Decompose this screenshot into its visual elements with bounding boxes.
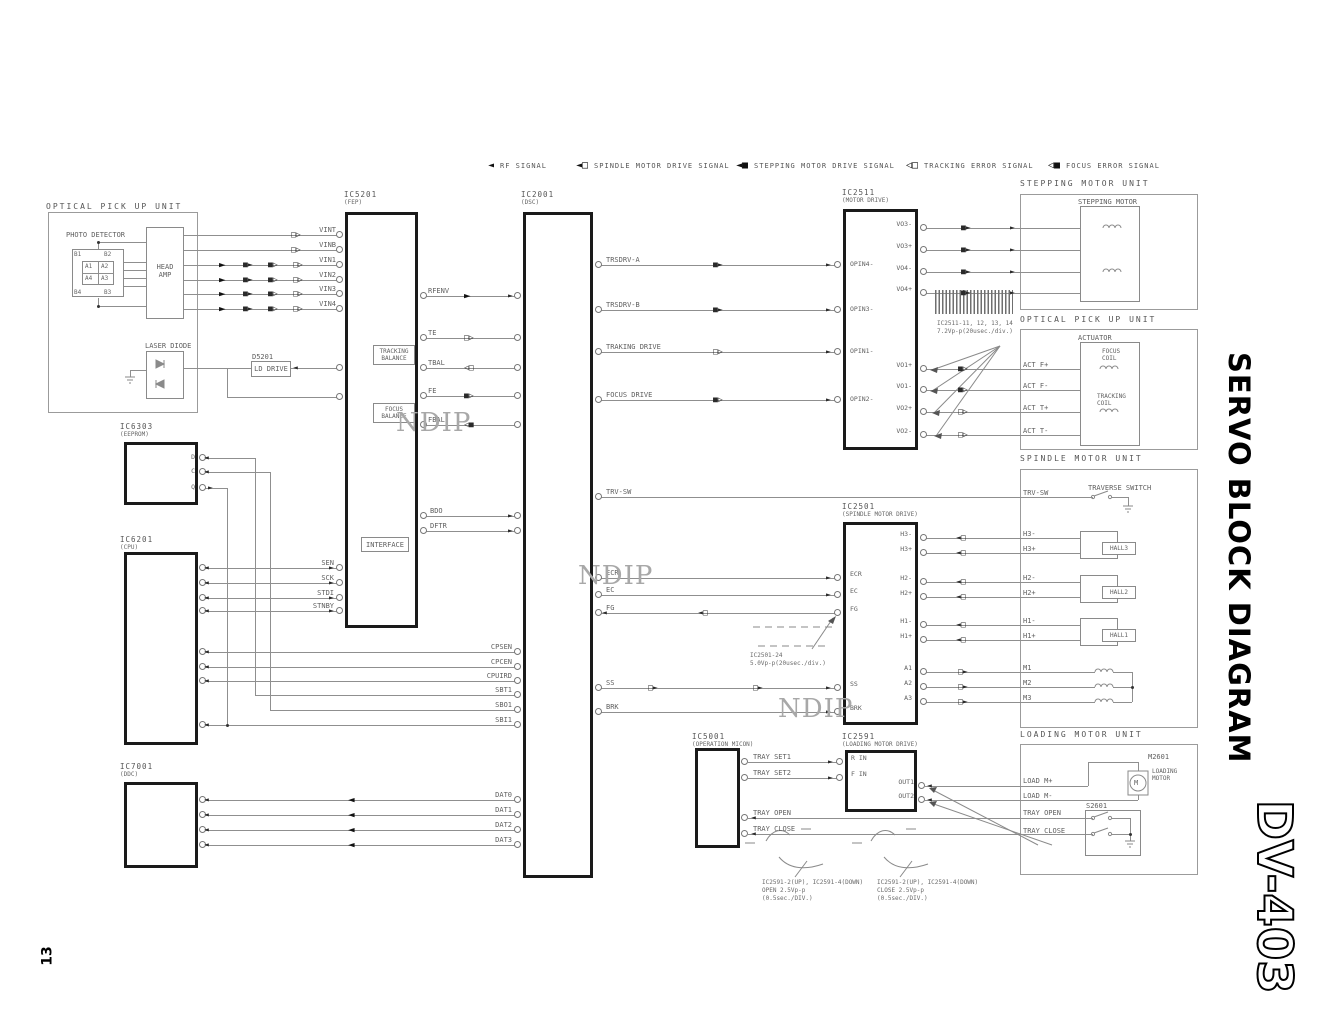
pin bbox=[514, 826, 521, 833]
wire bbox=[1088, 762, 1089, 786]
wire bbox=[926, 553, 1080, 554]
pin bbox=[920, 224, 927, 231]
ic-sub: (DSC) bbox=[521, 199, 539, 206]
stepping-waveform-note: IC2511-11, 12, 13, 14 7.2Vp-p(20usec./di… bbox=[937, 320, 1013, 336]
signal-marker-icon: ◄ bbox=[602, 608, 607, 617]
pointer-line bbox=[900, 861, 912, 877]
ic-name: IC6201 bbox=[120, 535, 153, 544]
span: FOCUS ERROR SIGNAL bbox=[1066, 162, 1160, 170]
span: SPINDLE MOTOR DRIVE SIGNAL bbox=[594, 162, 730, 170]
pin bbox=[336, 364, 343, 371]
arrowhead-icon bbox=[934, 433, 942, 439]
spindle-waveform-note: IC2501-24 5.0Vp-p(20usec./div.) bbox=[750, 652, 826, 668]
signal-marker-icon: □▷ bbox=[293, 289, 303, 298]
pin bbox=[595, 306, 602, 313]
ic-name: IC2511 bbox=[842, 188, 875, 197]
wire bbox=[1138, 762, 1139, 771]
pin bbox=[336, 276, 343, 283]
pin bbox=[836, 774, 843, 781]
ic-name: IC2001 bbox=[521, 190, 554, 199]
signal-marker-icon: ► bbox=[826, 260, 831, 269]
detector-cell-label: B1 bbox=[74, 251, 81, 258]
signal-label: OUT1 bbox=[898, 778, 914, 786]
signal-label: FE bbox=[428, 387, 436, 395]
wire bbox=[98, 242, 146, 243]
pin bbox=[595, 348, 602, 355]
signal-label: VO2- bbox=[896, 427, 912, 435]
pin bbox=[420, 334, 427, 341]
signal-label: VINT bbox=[319, 226, 336, 234]
waveform-curve-icon bbox=[884, 857, 928, 868]
wire bbox=[184, 294, 341, 295]
load-close-note: IC2591-2(UP), IC2591-4(DOWN) CLOSE 2.5Vp… bbox=[877, 879, 978, 903]
signal-marker-icon: ► bbox=[826, 305, 831, 314]
signal-arrow-icon: ► bbox=[219, 303, 226, 314]
ic-name: IC5001 bbox=[692, 732, 725, 741]
signal-label: TRAY OPEN bbox=[753, 809, 791, 817]
signal-label: M3 bbox=[1023, 694, 1031, 702]
signal-label: OUT2 bbox=[898, 792, 914, 800]
wire bbox=[597, 497, 1093, 498]
wire bbox=[1088, 762, 1138, 763]
signal-label: VIN1 bbox=[319, 256, 336, 264]
m2601-label: M2601 bbox=[1148, 753, 1169, 761]
signal-marker-icon: ■► bbox=[961, 223, 971, 232]
signal-arrow-icon: ► bbox=[219, 274, 226, 285]
signal-marker-icon: □► bbox=[958, 667, 968, 676]
pin bbox=[920, 246, 927, 253]
signal-label: DAT3 bbox=[495, 836, 512, 844]
signal-label: VO1- bbox=[896, 382, 912, 390]
signal-label: LOAD M+ bbox=[1023, 777, 1053, 785]
signal-marker-icon: ◄ bbox=[204, 453, 209, 462]
wire bbox=[184, 368, 251, 369]
traverse-switch-label: TRAVERSE SWITCH bbox=[1088, 484, 1151, 492]
signal-marker-icon: □► bbox=[958, 697, 968, 706]
signal-arrow-icon: ◄ bbox=[348, 824, 355, 835]
signal-label: H3+ bbox=[1023, 545, 1036, 553]
signal-marker-icon: ► bbox=[508, 291, 513, 300]
signal-label: TRAY OPEN bbox=[1023, 809, 1061, 817]
wire bbox=[184, 280, 341, 281]
loading-motor-label: LOADING MOTOR bbox=[1152, 768, 1177, 782]
stepping-motor-box bbox=[1080, 206, 1140, 302]
ic-name: IC6303 bbox=[120, 422, 153, 431]
wire bbox=[200, 652, 519, 653]
signal-arrow-icon: ► bbox=[464, 290, 471, 301]
signal-marker-icon: ◄□ bbox=[956, 620, 966, 629]
wire bbox=[200, 800, 519, 801]
span: STEPPING MOTOR DRIVE SIGNAL bbox=[754, 162, 895, 170]
signal-marker-icon: ■► bbox=[961, 267, 971, 276]
detector-cell-label: A3 bbox=[101, 275, 108, 282]
load-open-note: IC2591-2(UP), IC2591-4(DOWN) OPEN 2.5Vp-… bbox=[762, 879, 863, 903]
wire bbox=[926, 640, 1080, 641]
signal-marker-icon: ■► bbox=[243, 275, 253, 284]
wire bbox=[925, 786, 1088, 787]
ic2001-block bbox=[523, 212, 593, 878]
signal-label: VIN4 bbox=[319, 300, 336, 308]
ic-sub: (MOTOR DRIVE) bbox=[842, 197, 889, 204]
wire bbox=[82, 273, 114, 274]
signal-label: VO3+ bbox=[896, 242, 912, 250]
signal-marker-icon: ► bbox=[329, 563, 334, 572]
signal-marker-icon: ► bbox=[826, 590, 831, 599]
signal-marker-icon: □▷ bbox=[958, 407, 968, 416]
watermark: NDIP bbox=[578, 561, 653, 591]
pin bbox=[420, 292, 427, 299]
pin bbox=[420, 364, 427, 371]
pin bbox=[514, 721, 521, 728]
signal-label: A3 bbox=[904, 694, 912, 702]
wire bbox=[1113, 687, 1132, 688]
s2601-box bbox=[1085, 810, 1141, 856]
signal-marker-icon: ◄ bbox=[204, 467, 209, 476]
pin bbox=[741, 830, 748, 837]
pin bbox=[920, 698, 927, 705]
pin bbox=[336, 261, 343, 268]
signal-marker-icon: ◄ bbox=[204, 593, 209, 602]
signal-label: H2+ bbox=[1023, 589, 1036, 597]
signal-marker-icon: ◄ bbox=[204, 563, 209, 572]
pin bbox=[420, 512, 427, 519]
pin bbox=[595, 493, 602, 500]
signal-label: H1+ bbox=[900, 632, 912, 640]
wire bbox=[926, 625, 1080, 626]
d5201-label: D5201 bbox=[252, 353, 273, 361]
pin bbox=[595, 684, 602, 691]
spindle-arrow-icon: ◄□ bbox=[576, 161, 588, 171]
junction-dot bbox=[97, 305, 100, 308]
signal-marker-icon: ◄□ bbox=[956, 577, 966, 586]
wire bbox=[925, 800, 1138, 801]
signal-label: DAT1 bbox=[495, 806, 512, 814]
pin bbox=[199, 484, 206, 491]
wire bbox=[926, 672, 1095, 673]
signal-label: ACT F- bbox=[1023, 382, 1048, 390]
unit-title: OPTICAL PICK UP UNIT bbox=[1020, 315, 1156, 324]
focus-coil-label: FOCUS COIL bbox=[1102, 348, 1120, 362]
wire bbox=[748, 818, 1093, 819]
unit-title: OPTICAL PICK UP UNIT bbox=[46, 202, 182, 211]
actuator-label: ACTUATOR bbox=[1078, 334, 1112, 342]
signal-marker-icon: ◄ bbox=[204, 825, 209, 834]
signal-label: SBI1 bbox=[495, 716, 512, 724]
wire bbox=[200, 472, 270, 473]
laser-diode-box bbox=[146, 351, 184, 399]
wire bbox=[184, 265, 341, 266]
signal-label: SS bbox=[606, 679, 614, 687]
pin bbox=[514, 334, 521, 341]
arrowhead-icon bbox=[828, 616, 836, 624]
signal-label: H3- bbox=[1023, 530, 1036, 538]
waveform-curve-icon bbox=[871, 830, 895, 841]
signal-marker-icon: ► bbox=[329, 606, 334, 615]
signal-marker-icon: ◄ bbox=[204, 662, 209, 671]
pin bbox=[834, 306, 841, 313]
pin bbox=[514, 292, 521, 299]
wire bbox=[200, 845, 519, 846]
signal-marker-icon: ■▷ bbox=[713, 395, 723, 404]
signal-label: TRAY SET1 bbox=[753, 753, 791, 761]
pin bbox=[741, 774, 748, 781]
signal-marker-icon: ■► bbox=[243, 289, 253, 298]
signal-marker-icon: ► bbox=[1010, 267, 1015, 276]
signal-label: EC bbox=[850, 587, 858, 595]
wire bbox=[227, 368, 228, 397]
pin bbox=[595, 261, 602, 268]
wire bbox=[130, 370, 131, 377]
signal-marker-icon: ◄□ bbox=[956, 548, 966, 557]
ic-name: IC2501 bbox=[842, 502, 875, 511]
signal-label: TRAKING DRIVE bbox=[606, 343, 661, 351]
tracking-coil-label: TRACKING COIL bbox=[1097, 393, 1126, 407]
page-title: SERVO BLOCK DIAGRAM bbox=[1222, 352, 1256, 764]
signal-label: ACT T- bbox=[1023, 427, 1048, 435]
model-number: DV-403 bbox=[1246, 800, 1302, 994]
signal-label: DAT2 bbox=[495, 821, 512, 829]
pin bbox=[514, 663, 521, 670]
wire bbox=[926, 582, 1080, 583]
signal-marker-icon: ► bbox=[329, 578, 334, 587]
ic-sub: (SPINDLE MOTOR DRIVE) bbox=[842, 511, 918, 518]
hall2-label: HALL2 bbox=[1103, 589, 1135, 597]
pin bbox=[514, 512, 521, 519]
signal-label: BRK bbox=[606, 703, 619, 711]
pin bbox=[514, 841, 521, 848]
signal-label: FOCUS DRIVE bbox=[606, 391, 652, 399]
signal-label: ACT F+ bbox=[1023, 361, 1048, 369]
pin bbox=[595, 591, 602, 598]
signal-label: FG bbox=[850, 605, 858, 613]
wire bbox=[200, 667, 519, 668]
legend-item-tracking: ◁□TRACKING ERROR SIGNAL bbox=[906, 161, 1034, 171]
junction-dot bbox=[97, 241, 100, 244]
servo-block-diagram-page: ◄RF SIGNAL ◄□SPINDLE MOTOR DRIVE SIGNAL … bbox=[0, 0, 1320, 1020]
signal-label: H2- bbox=[900, 574, 912, 582]
wire bbox=[227, 397, 341, 398]
signal-label: TRAY SET2 bbox=[753, 769, 791, 777]
signal-label: CPSEN bbox=[491, 643, 512, 651]
hall3-label: HALL3 bbox=[1103, 545, 1135, 553]
pin bbox=[918, 782, 925, 789]
signal-marker-icon: ■► bbox=[961, 288, 971, 297]
signal-marker-icon: □▷ bbox=[464, 333, 474, 342]
wire bbox=[270, 710, 519, 711]
ic-sub: (OPERATION MICON) bbox=[692, 741, 753, 748]
signal-marker-icon: □▷ bbox=[291, 230, 301, 239]
pin bbox=[834, 591, 841, 598]
pin bbox=[336, 564, 343, 571]
pin bbox=[420, 527, 427, 534]
signal-label: VINB bbox=[319, 241, 336, 249]
signal-marker-icon: ► bbox=[1010, 288, 1015, 297]
signal-label: H1- bbox=[900, 617, 912, 625]
wire bbox=[926, 412, 1100, 413]
signal-marker-icon: □▷ bbox=[293, 260, 303, 269]
signal-label: H1- bbox=[1023, 617, 1036, 625]
signal-arrow-icon: ◄ bbox=[348, 794, 355, 805]
pin bbox=[336, 579, 343, 586]
signal-label: F IN bbox=[851, 770, 867, 778]
signal-marker-icon: ■▷ bbox=[958, 364, 968, 373]
signal-label: TE bbox=[428, 329, 436, 337]
ic-sub: (CPU) bbox=[120, 544, 138, 551]
pin bbox=[920, 578, 927, 585]
pin bbox=[741, 758, 748, 765]
signal-marker-icon: ◄□ bbox=[956, 533, 966, 542]
signal-marker-icon: ► bbox=[208, 483, 213, 492]
legend-item-focus: ◁■FOCUS ERROR SIGNAL bbox=[1048, 161, 1160, 171]
pin bbox=[514, 392, 521, 399]
signal-marker-icon: ■► bbox=[243, 304, 253, 313]
pin bbox=[336, 594, 343, 601]
signal-marker-icon: ■▷ bbox=[958, 385, 968, 394]
signal-marker-icon: ► bbox=[1010, 245, 1015, 254]
signal-marker-icon: ■▷ bbox=[268, 260, 278, 269]
signal-label: DFTR bbox=[430, 522, 447, 530]
wire bbox=[926, 597, 1080, 598]
detector-cell-label: B4 bbox=[74, 289, 81, 296]
pointer-line bbox=[936, 346, 1000, 436]
tracking-balance-label: TRACKING BALANCE bbox=[374, 348, 414, 362]
legend-item-rf: ◄RF SIGNAL bbox=[488, 161, 547, 171]
wire bbox=[184, 309, 341, 310]
signal-marker-icon: □► bbox=[648, 683, 658, 692]
s2601-label: S2601 bbox=[1086, 802, 1107, 810]
wire bbox=[124, 262, 146, 263]
pin bbox=[514, 421, 521, 428]
signal-label: H2+ bbox=[900, 589, 912, 597]
legend-item-spindle: ◄□SPINDLE MOTOR DRIVE SIGNAL bbox=[576, 161, 730, 171]
pin bbox=[920, 683, 927, 690]
signal-marker-icon: ■► bbox=[713, 260, 723, 269]
signal-marker-icon: □▷ bbox=[293, 275, 303, 284]
wire bbox=[597, 595, 839, 596]
pin bbox=[920, 636, 927, 643]
signal-label: TRAY CLOSE bbox=[1023, 827, 1065, 835]
pin bbox=[920, 431, 927, 438]
pin bbox=[920, 549, 927, 556]
wire bbox=[227, 488, 228, 725]
arrowhead-icon bbox=[930, 367, 938, 373]
pin bbox=[834, 396, 841, 403]
pin bbox=[920, 289, 927, 296]
signal-marker-icon: ◄ bbox=[204, 720, 209, 729]
signal-label: OPIN1- bbox=[850, 347, 873, 355]
pin bbox=[514, 364, 521, 371]
wire bbox=[184, 235, 341, 236]
detector-cell-label: A2 bbox=[101, 263, 108, 270]
ic-name: IC2591 bbox=[842, 732, 875, 741]
junction-dot bbox=[1131, 686, 1134, 689]
legend-item-stepping: ◄■STEPPING MOTOR DRIVE SIGNAL bbox=[736, 161, 895, 171]
signal-marker-icon: ◄ bbox=[204, 795, 209, 804]
signal-arrow-icon: ◄ bbox=[348, 809, 355, 820]
pin bbox=[336, 246, 343, 253]
signal-label: VO4- bbox=[896, 264, 912, 272]
span: TRACKING ERROR SIGNAL bbox=[924, 162, 1034, 170]
signal-label: ACT T+ bbox=[1023, 404, 1048, 412]
pin bbox=[920, 534, 927, 541]
pin bbox=[514, 648, 521, 655]
signal-marker-icon: ◄ bbox=[927, 781, 932, 790]
pointer-line bbox=[812, 618, 833, 649]
signal-label: OPIN4- bbox=[850, 260, 873, 268]
unit-title: LOADING MOTOR UNIT bbox=[1020, 730, 1143, 739]
watermark: NDIP bbox=[778, 694, 853, 724]
signal-marker-icon: ► bbox=[1010, 223, 1015, 232]
pin bbox=[836, 758, 843, 765]
signal-label: ECR bbox=[850, 570, 862, 578]
signal-label: TRSDRV-B bbox=[606, 301, 640, 309]
signal-label: C bbox=[191, 467, 195, 475]
signal-marker-icon: ◄ bbox=[751, 829, 756, 838]
pin bbox=[514, 691, 521, 698]
pin bbox=[920, 386, 927, 393]
signal-marker-icon: ► bbox=[508, 526, 513, 535]
waveform-curve-icon bbox=[779, 857, 823, 868]
signal-marker-icon: ► bbox=[826, 683, 831, 692]
watermark: NDIP bbox=[396, 408, 471, 438]
trv-sw-label: TRV-SW bbox=[1023, 489, 1048, 497]
ic7001-block bbox=[124, 782, 198, 868]
signal-marker-icon: ◄ bbox=[204, 676, 209, 685]
signal-marker-icon: □▷ bbox=[958, 430, 968, 439]
signal-label: A2 bbox=[904, 679, 912, 687]
wire bbox=[255, 695, 519, 696]
signal-arrow-icon: ► bbox=[219, 288, 226, 299]
signal-label: VO2+ bbox=[896, 404, 912, 412]
signal-marker-icon: □▷ bbox=[291, 245, 301, 254]
signal-label: H2- bbox=[1023, 574, 1036, 582]
wire bbox=[926, 369, 1100, 370]
pin bbox=[834, 261, 841, 268]
signal-label: Q bbox=[191, 483, 195, 491]
signal-arrow-icon: ► bbox=[219, 259, 226, 270]
signal-marker-icon: ◄□ bbox=[956, 592, 966, 601]
signal-label: D bbox=[191, 453, 195, 461]
wire bbox=[1128, 497, 1129, 506]
ic-name: IC7001 bbox=[120, 762, 153, 771]
pin bbox=[336, 393, 343, 400]
signal-marker-icon: □► bbox=[753, 683, 763, 692]
signal-label: RFENV bbox=[428, 287, 449, 295]
signal-marker-icon: ◄□ bbox=[698, 608, 708, 617]
pin bbox=[514, 677, 521, 684]
signal-marker-icon: ◄ bbox=[927, 795, 932, 804]
signal-label: CPUIRD bbox=[487, 672, 512, 680]
signal-marker-icon: ► bbox=[828, 757, 833, 766]
pin bbox=[920, 621, 927, 628]
pin bbox=[741, 814, 748, 821]
signal-marker-icon: ■▷ bbox=[268, 289, 278, 298]
wire bbox=[130, 370, 146, 371]
signal-label: H3- bbox=[900, 530, 912, 538]
detector-cell-label: B3 bbox=[104, 289, 111, 296]
signal-label: M1 bbox=[1023, 664, 1031, 672]
signal-marker-icon: ◄ bbox=[204, 840, 209, 849]
signal-marker-icon: □▷ bbox=[293, 304, 303, 313]
wire bbox=[200, 830, 519, 831]
signal-label: VO4+ bbox=[896, 285, 912, 293]
motor-symbol: M bbox=[1134, 779, 1138, 787]
signal-marker-icon: ◄ bbox=[751, 813, 756, 822]
signal-marker-icon: ► bbox=[826, 347, 831, 356]
pin bbox=[514, 706, 521, 713]
signal-label: H3+ bbox=[900, 545, 912, 553]
signal-label: OPIN2- bbox=[850, 395, 873, 403]
